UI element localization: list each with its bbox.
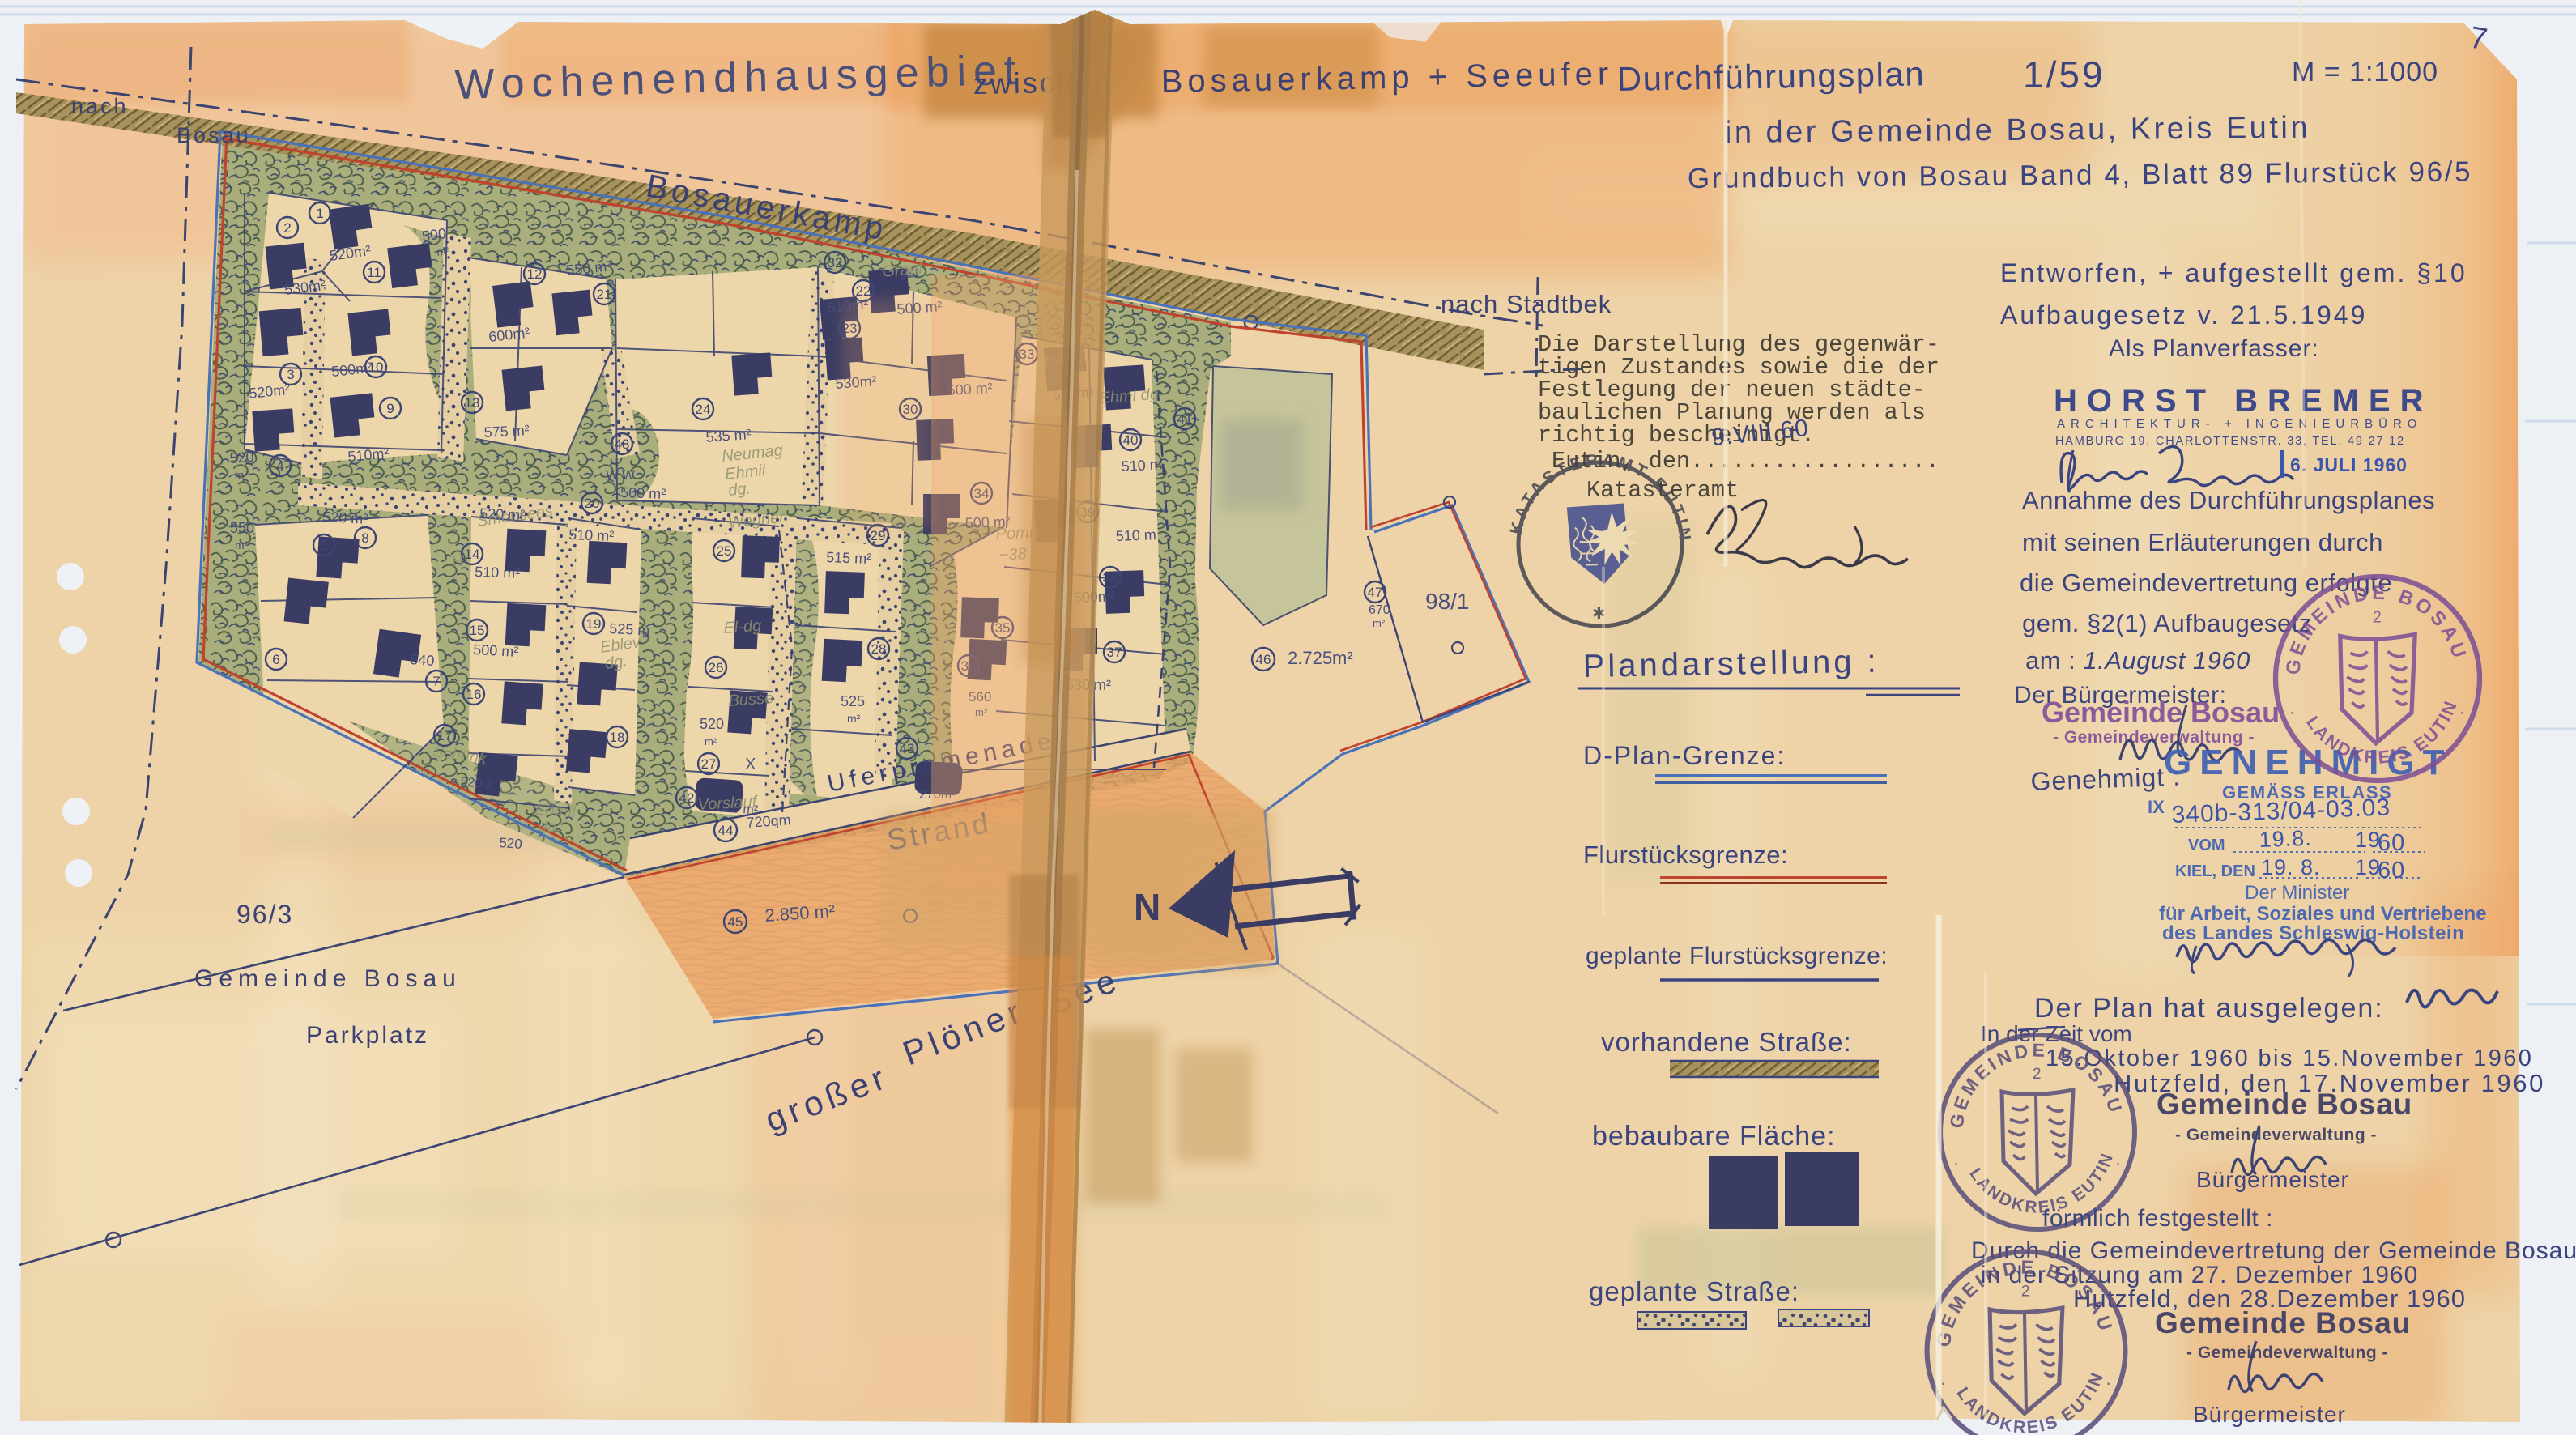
svg-text:für Arbeit, Soziales und Vertr: für Arbeit, Soziales und Vertriebene [2159,903,2487,925]
svg-text:Plandarstellung :: Plandarstellung : [1582,644,1880,684]
svg-text:13: 13 [465,395,480,411]
svg-text:45: 45 [728,914,743,930]
svg-text:21: 21 [597,287,612,302]
svg-text:des Landes Schleswig-Holstein: des Landes Schleswig-Holstein [2162,922,2464,944]
svg-text:16: 16 [466,687,482,702]
svg-text:bebaubare Fläche:: bebaubare Fläche: [1592,1121,1836,1152]
svg-text:Der Minister: Der Minister [2245,882,2349,904]
svg-text:47: 47 [1368,585,1383,600]
svg-text:ARCHITEKTUR- + INGENIEURBÜRO: ARCHITEKTUR- + INGENIEURBÜRO [2057,416,2422,431]
svg-text:40: 40 [1123,432,1139,448]
svg-text:Annahme des Durchführungsplane: Annahme des Durchführungsplanes [2022,486,2435,514]
svg-text:Genehmigt :: Genehmigt : [2030,762,2181,796]
svg-text:520: 520 [700,716,724,732]
svg-text:1: 1 [316,206,323,221]
svg-text:19. 8.: 19. 8. [2261,855,2321,879]
svg-text:500: 500 [421,225,448,245]
svg-text:VOM: VOM [2188,837,2225,854]
svg-text:nach: nach [71,94,129,118]
svg-text:6. JULI 1960: 6. JULI 1960 [2290,454,2408,475]
svg-text:W.W.: W.W. [606,467,638,483]
svg-text:98/1: 98/1 [1425,589,1470,614]
svg-text:m²: m² [436,245,450,258]
svg-text:Vorslauf: Vorslauf [697,793,759,814]
svg-text:geplante Flurstücksgrenze:: geplante Flurstücksgrenze: [1586,943,1888,969]
svg-text:510 m: 510 m [1115,526,1156,544]
svg-text:46: 46 [1256,652,1271,667]
svg-text:Durchführungsplan: Durchführungsplan [1616,54,1925,98]
svg-text:X: X [745,756,756,773]
svg-text:520 m²: 520 m² [322,509,368,527]
svg-text:25: 25 [717,543,732,559]
svg-text:12: 12 [527,266,543,282]
svg-text:Flurstücksgrenze:: Flurstücksgrenze: [1583,841,1788,869]
svg-text:Der Plan hat ausgelegen:: Der Plan hat ausgelegen: [2034,993,2384,1024]
svg-text:M = 1:1000: M = 1:1000 [2292,57,2438,87]
svg-text:7: 7 [432,674,440,689]
svg-text:in der Gemeinde Bosau, Kreis E: in der Gemeinde Bosau, Kreis Eutin [1725,111,2310,150]
svg-text:m²: m² [1373,617,1386,629]
svg-text:520: 520 [499,835,523,852]
svg-text:38: 38 [1103,570,1118,585]
svg-text:m²: m² [234,468,249,482]
svg-text:510 m²: 510 m² [475,564,521,581]
svg-text:4: 4 [276,458,283,474]
svg-text:20: 20 [585,496,600,511]
svg-text:2: 2 [283,220,291,236]
svg-text:60: 60 [2378,830,2405,856]
svg-text:Entworfen, + aufgestellt gem.: Entworfen, + aufgestellt gem. §10 [2000,258,2467,287]
svg-text:Busse: Busse [728,689,774,710]
svg-text:Gemeinde Bosau: Gemeinde Bosau [2155,1306,2411,1339]
svg-text:535 m²: 535 m² [705,426,752,445]
svg-text:11: 11 [367,265,381,280]
svg-text:9: 9 [386,401,394,416]
svg-text:670: 670 [1369,603,1390,617]
svg-text:510 m²: 510 m² [568,526,615,544]
svg-text:48: 48 [615,436,630,452]
svg-text:540: 540 [410,651,435,669]
svg-text:da.: da. [538,817,561,837]
svg-text:500 m²: 500 m² [620,484,666,502]
svg-text:D-Plan-Grenze:: D-Plan-Grenze: [1583,741,1786,770]
svg-text:15: 15 [470,623,485,638]
svg-text:19: 19 [586,616,602,632]
svg-text:1/59: 1/59 [2023,53,2106,96]
svg-text:HAMBURG 19, CHARLOTTENSTR. 33,: HAMBURG 19, CHARLOTTENSTR. 33, TEL. 49 2… [2055,435,2405,448]
svg-text:510 m: 510 m [1121,456,1162,475]
svg-text:dg.: dg. [604,652,629,673]
svg-text:dg.: dg. [727,479,752,500]
svg-text:6: 6 [272,652,279,667]
svg-text:am : 1.August 1960: am : 1.August 1960 [2025,646,2250,675]
svg-text:- Gemeindeverwaltung -: - Gemeindeverwaltung - [2186,1343,2388,1362]
svg-text:Bürgermeister: Bürgermeister [2193,1402,2346,1427]
svg-text:vorhandene Straße:: vorhandene Straße: [1601,1027,1852,1057]
svg-text:gem. §2(1) Aufbaugesetz: gem. §2(1) Aufbaugesetz [2022,609,2312,637]
svg-text:19.8.: 19.8. [2259,826,2312,852]
svg-text:m²: m² [705,735,717,747]
svg-text:El-dg: El-dg [723,617,762,637]
svg-text:mit seinen Erläuterungen durc: mit seinen Erläuterungen durch [2022,528,2383,556]
svg-text:nach Stadtbek: nach Stadtbek [1441,290,1612,318]
svg-text:KIEL, DEN: KIEL, DEN [2175,862,2255,880]
svg-text:geplante Straße:: geplante Straße: [1589,1276,1799,1306]
svg-text:- Gemeindeverwaltung -: - Gemeindeverwaltung - [2175,1126,2377,1144]
svg-text:Gemeinde Bosau: Gemeinde Bosau [2157,1088,2412,1121]
svg-text:Bürgermeister: Bürgermeister [2196,1167,2349,1192]
svg-text:60: 60 [2378,858,2405,884]
svg-text:2.725m²: 2.725m² [1288,648,1353,668]
svg-text:18: 18 [610,730,625,745]
svg-text:96/3: 96/3 [236,900,293,929]
svg-text:Bosau: Bosau [177,123,251,147]
svg-text:37: 37 [1107,645,1122,660]
svg-text:520: 520 [229,449,254,466]
svg-text:26: 26 [709,660,724,675]
svg-text:27: 27 [701,756,717,772]
svg-text:28: 28 [871,641,887,657]
svg-text:515 m²: 515 m² [826,549,872,567]
svg-text:N: N [1134,886,1160,928]
svg-text:m²: m² [847,712,861,725]
svg-text:HORST BREMER: HORST BREMER [2054,383,2433,419]
svg-text:Gemeinde Bosau: Gemeinde Bosau [194,965,462,992]
svg-text:Parkplatz: Parkplatz [306,1022,429,1049]
svg-text:575 m²: 575 m² [483,422,530,441]
svg-text:500 m²: 500 m² [473,641,519,660]
svg-text:H: H [450,552,464,571]
svg-text:720qm: 720qm [746,811,791,831]
svg-text:42: 42 [679,790,695,806]
svg-text:3: 3 [287,367,294,382]
svg-text:Aufbaugesetz v. 21.5.1949: Aufbaugesetz v. 21.5.1949 [2000,300,2367,330]
svg-text:Grauf: Grauf [882,259,926,280]
svg-text:15.Oktober 1960 bis 15.Novembe: 15.Oktober 1960 bis 15.November 1960 [2046,1045,2533,1071]
svg-text:IX: IX [2148,797,2165,817]
svg-text:32: 32 [828,255,843,270]
svg-text:525: 525 [841,693,865,709]
svg-text:29: 29 [871,528,886,543]
svg-text:8: 8 [361,530,368,546]
svg-text:41: 41 [1177,411,1193,427]
svg-text:550: 550 [230,520,254,536]
svg-text:Als Planverfasser:: Als Planverfasser: [2109,335,2319,362]
svg-text:5: 5 [320,538,327,553]
svg-text:m²: m² [235,539,249,551]
svg-text:17: 17 [437,728,453,743]
svg-text:24: 24 [696,402,711,417]
svg-text:14: 14 [465,547,480,562]
svg-text:Gemeinde Bosau: Gemeinde Bosau [2042,696,2280,729]
svg-text:44: 44 [718,823,734,838]
svg-text:förmlich festgestellt :: förmlich festgestellt : [2042,1205,2273,1232]
